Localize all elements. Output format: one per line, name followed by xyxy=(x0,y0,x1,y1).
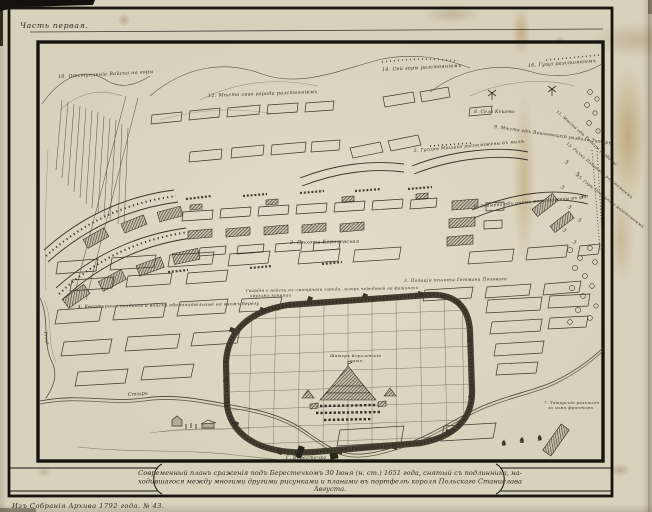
label-town-distance: 12. Мѣсто сего города разстояніемъ xyxy=(208,89,318,99)
label-river-left: Рѣка xyxy=(42,330,49,345)
royal-tent-icon xyxy=(302,361,396,409)
svg-text:ʒ: ʒ xyxy=(566,203,572,210)
label-thicket: 16. Гуща разстояніемъ xyxy=(528,58,597,69)
caption-line2: ходившагося между многими другими рисунк… xyxy=(138,478,522,486)
center-troop-lines xyxy=(168,187,504,272)
windmill-icon xyxy=(488,86,556,100)
svg-text:♞: ♞ xyxy=(499,438,507,448)
label-retreat-hills: 10. Отступленіе Войска на горы xyxy=(58,69,154,80)
label-royal-tent-line1: Шатеръ Королевскій xyxy=(329,353,381,358)
archive-note: Изъ Собранія Архива 1792 года. № 43. xyxy=(11,502,164,510)
label-hill-distance: 14. Сей горы разстояніемъ xyxy=(382,63,462,73)
svg-text:♞: ♞ xyxy=(535,433,543,443)
tatar-cavalry-icons: ♞ ♞ ♞ xyxy=(499,424,569,456)
scanned-engraving-page: Часть первая. xyxy=(0,0,652,512)
svg-text:♞: ♞ xyxy=(518,436,526,445)
map-frame xyxy=(38,42,603,461)
label-village-koshevo: 8. Село Кошево xyxy=(474,110,515,115)
svg-text:ʒ: ʒ xyxy=(571,238,577,245)
label-royal-tent-line2: нашъ xyxy=(350,358,363,363)
svg-text:ʒ: ʒ xyxy=(559,183,565,190)
town xyxy=(223,291,474,460)
label-quarters: 4. Квартирные солдаты и войски обороните… xyxy=(77,302,260,310)
label-tatar-patrol-line1: 7. Татарскій разъѣздъ xyxy=(544,400,600,405)
mid-row-quarters xyxy=(56,244,600,301)
camps xyxy=(55,294,590,446)
left-fields xyxy=(45,96,138,300)
label-hetman-position: 3. Позиція пѣхоты Гетмана Полеваго xyxy=(404,277,507,284)
svg-text:ʒ: ʒ xyxy=(563,158,569,165)
left-wing-formations xyxy=(44,190,200,308)
caption-cartouche: Современный планъ сраженія подъ Берестеч… xyxy=(9,464,612,495)
label-berestechko: Г. Берестечко xyxy=(285,455,327,461)
caption-line3: Августа. xyxy=(313,485,347,493)
map-labels: 10. Отступленіе Войска на горы 12. Мѣсто… xyxy=(42,58,646,461)
label-tatar-patrol-line2: за симъ фронтомъ xyxy=(548,405,594,410)
label-river-styr: Стырь xyxy=(128,391,149,398)
label-guard-line2: кругомъ конница xyxy=(250,292,292,298)
part-label: Часть первая. xyxy=(20,21,88,30)
plate-frame xyxy=(9,8,612,496)
label-royal-infantry: 2. Пѣхота Королевская xyxy=(289,239,360,246)
caption-line1: Современный планъ сраженія подъ Берестеч… xyxy=(138,469,522,477)
engraved-battle-map: Часть первая. xyxy=(0,0,652,512)
label-guard-line1: Гвардія и войски въ смотрѣніи города, ла… xyxy=(245,285,419,293)
hills xyxy=(42,55,602,120)
svg-text:ʒ: ʒ xyxy=(576,216,582,223)
